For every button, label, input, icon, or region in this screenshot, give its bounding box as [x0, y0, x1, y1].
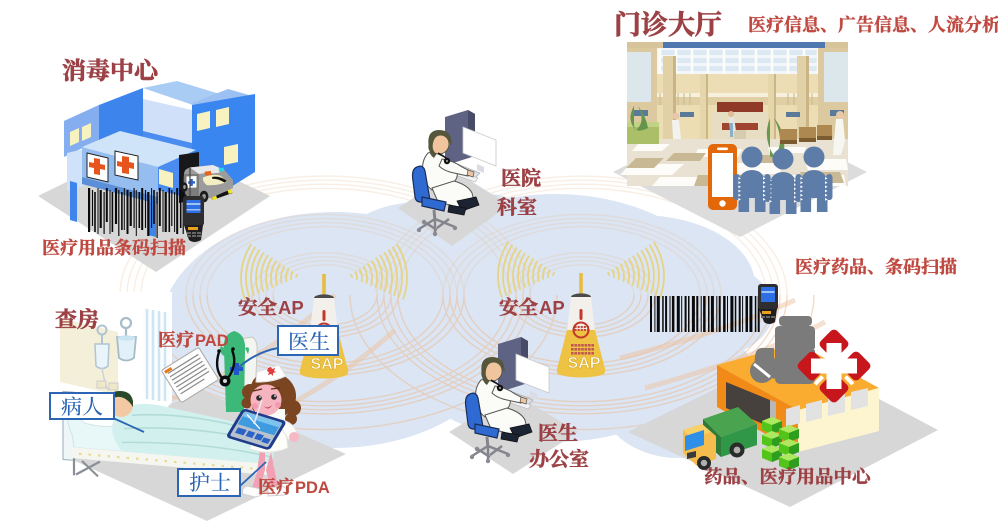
svg-text:AP: AP	[539, 297, 565, 318]
svg-text:AP: AP	[278, 297, 304, 318]
svg-text:SAP: SAP	[311, 356, 344, 373]
svg-text:PAD: PAD	[195, 332, 229, 350]
svg-text:SAP: SAP	[568, 355, 601, 372]
svg-text:PDA: PDA	[295, 479, 330, 497]
